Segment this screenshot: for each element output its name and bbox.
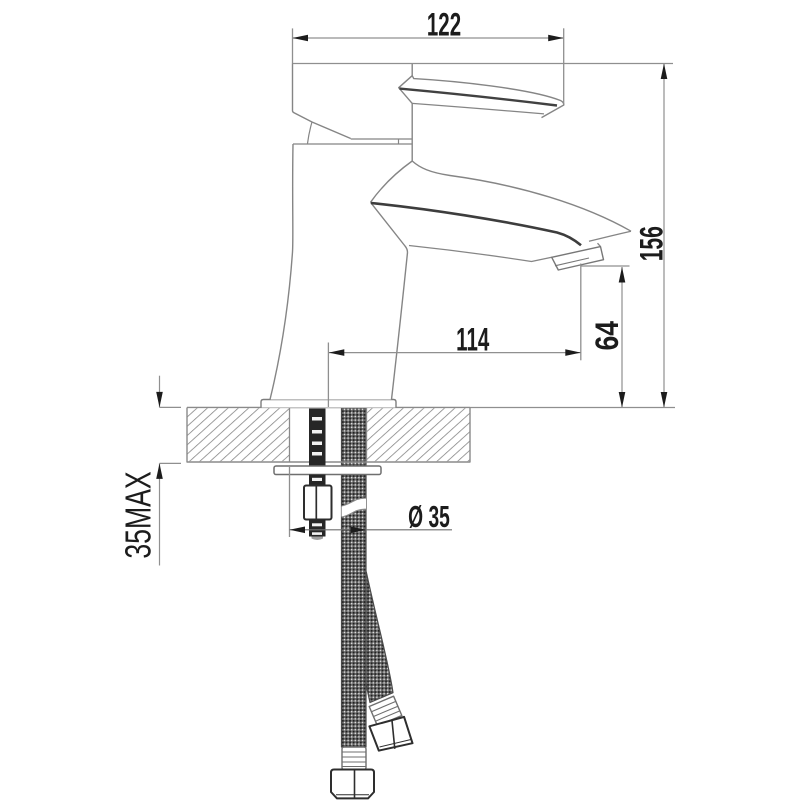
svg-text:64: 64 xyxy=(590,320,626,350)
svg-text:156: 156 xyxy=(633,226,670,261)
svg-text:Ø 35: Ø 35 xyxy=(408,501,450,535)
svg-text:114: 114 xyxy=(456,321,489,358)
svg-text:35MAX: 35MAX xyxy=(117,471,158,558)
svg-text:122: 122 xyxy=(427,6,461,43)
